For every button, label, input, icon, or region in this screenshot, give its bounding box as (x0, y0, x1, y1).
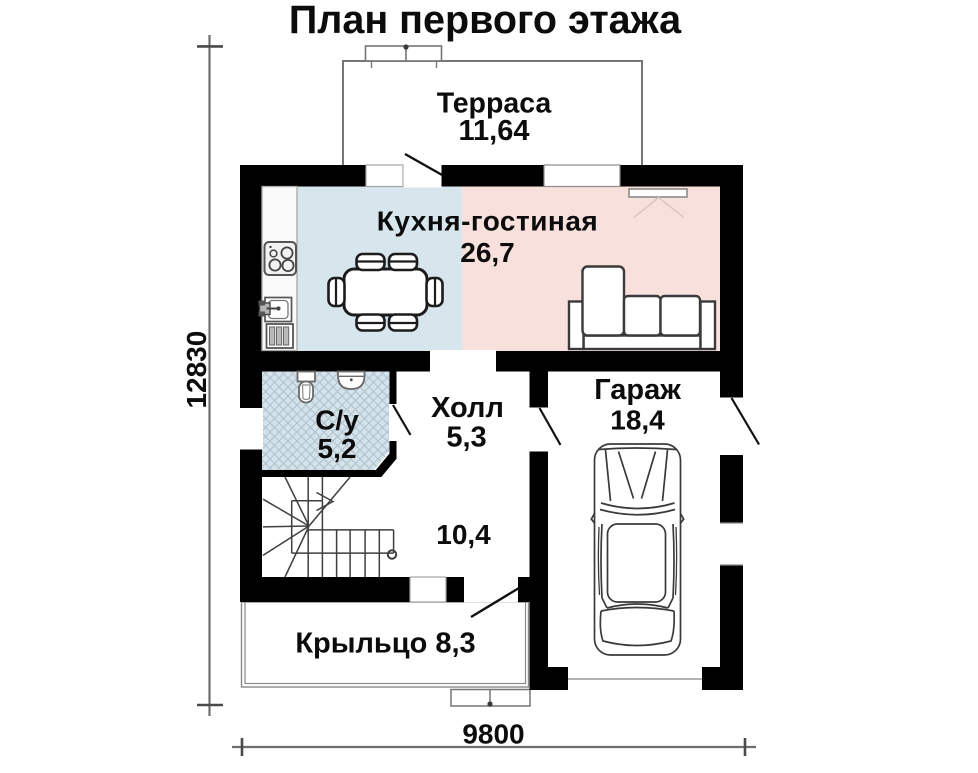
svg-text:11,64: 11,64 (459, 115, 530, 147)
svg-text:Гараж: Гараж (594, 374, 681, 406)
svg-text:12830: 12830 (181, 331, 212, 409)
svg-text:9800: 9800 (462, 719, 524, 750)
svg-text:Кухня-гостиная: Кухня-гостиная (377, 206, 599, 237)
svg-text:План первого этажа: План первого этажа (289, 0, 682, 42)
svg-text:5,3: 5,3 (446, 422, 486, 454)
svg-text:С/у: С/у (315, 405, 359, 436)
svg-text:18,4: 18,4 (610, 405, 665, 436)
svg-text:10,4: 10,4 (436, 519, 491, 550)
svg-text:Крыльцо 8,3: Крыльцо 8,3 (295, 628, 475, 660)
svg-text:5,2: 5,2 (318, 433, 357, 464)
svg-text:26,7: 26,7 (460, 237, 515, 268)
svg-text:Холл: Холл (431, 392, 504, 424)
